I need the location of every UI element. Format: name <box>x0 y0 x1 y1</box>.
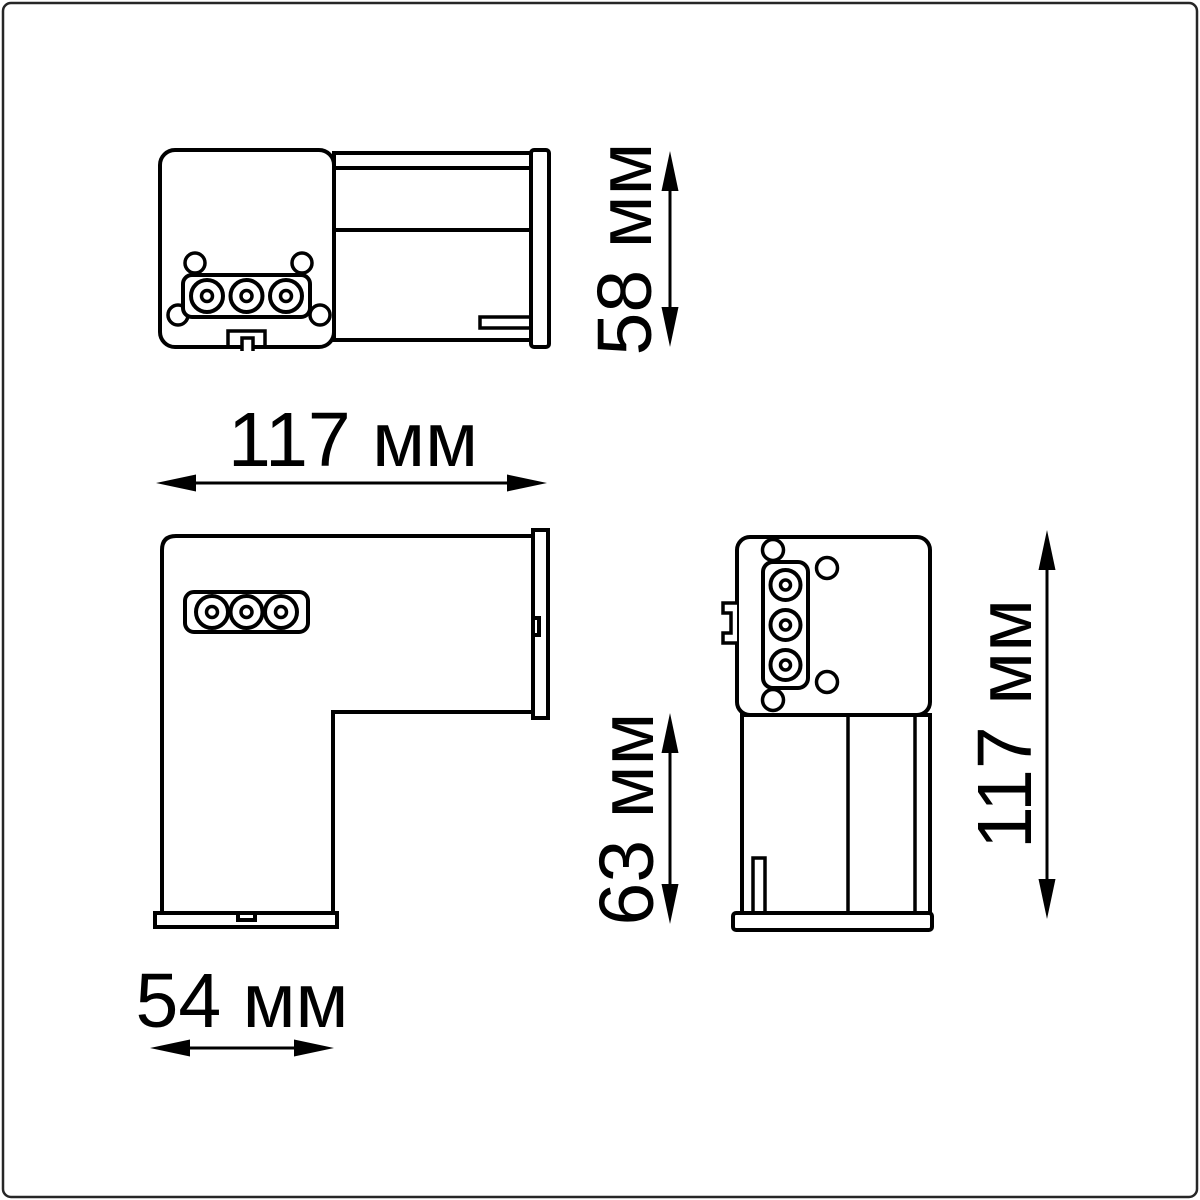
latch-tab <box>480 317 533 328</box>
screw-hole <box>817 672 838 693</box>
end-flange <box>533 530 548 718</box>
screw-hole <box>185 253 205 273</box>
dimension-label: 117 мм <box>962 599 1048 849</box>
dimension-label: 63 мм <box>584 713 670 926</box>
dimension-front-height: 117 мм <box>962 530 1056 919</box>
terminal <box>231 280 263 312</box>
inner-rib <box>753 858 765 913</box>
arrowhead-left <box>156 475 196 492</box>
dimension-label: 117 мм <box>228 397 478 483</box>
terminal <box>771 610 801 640</box>
terminal <box>196 596 228 628</box>
terminal <box>265 596 297 628</box>
arrowhead-right <box>507 475 547 492</box>
plan-view <box>155 530 548 927</box>
end-flange <box>531 150 549 347</box>
terminal <box>771 650 801 680</box>
terminal <box>771 570 801 600</box>
dimension-side-height: 58 мм <box>582 143 679 356</box>
base-plate <box>733 913 932 930</box>
base-plate <box>155 913 337 927</box>
screw-hole <box>763 540 784 561</box>
screw-hole <box>763 690 784 711</box>
drawing-canvas: 58 мм 117 мм 63 мм <box>0 0 1200 1200</box>
side-view <box>160 150 549 353</box>
side-clip <box>723 603 737 643</box>
terminal <box>231 596 263 628</box>
arrowhead-down <box>1039 879 1056 919</box>
notch-slot <box>242 338 253 351</box>
screw-hole <box>292 253 312 273</box>
arrowhead-up <box>1039 530 1056 570</box>
dimension-leg-width: 54 мм <box>136 958 349 1057</box>
front-view <box>723 537 932 930</box>
screw-hole <box>817 558 838 579</box>
housing-body <box>334 153 533 340</box>
terminal <box>270 280 302 312</box>
dimension-top-width: 117 мм <box>156 397 547 492</box>
dimension-leg-height: 63 мм <box>584 713 679 926</box>
terminal <box>191 280 223 312</box>
screw-hole <box>310 305 330 325</box>
dimension-label: 58 мм <box>582 143 668 356</box>
dimension-label: 54 мм <box>136 958 349 1044</box>
technical-drawing: 58 мм 117 мм 63 мм <box>0 0 1200 1200</box>
lower-housing <box>742 715 930 913</box>
